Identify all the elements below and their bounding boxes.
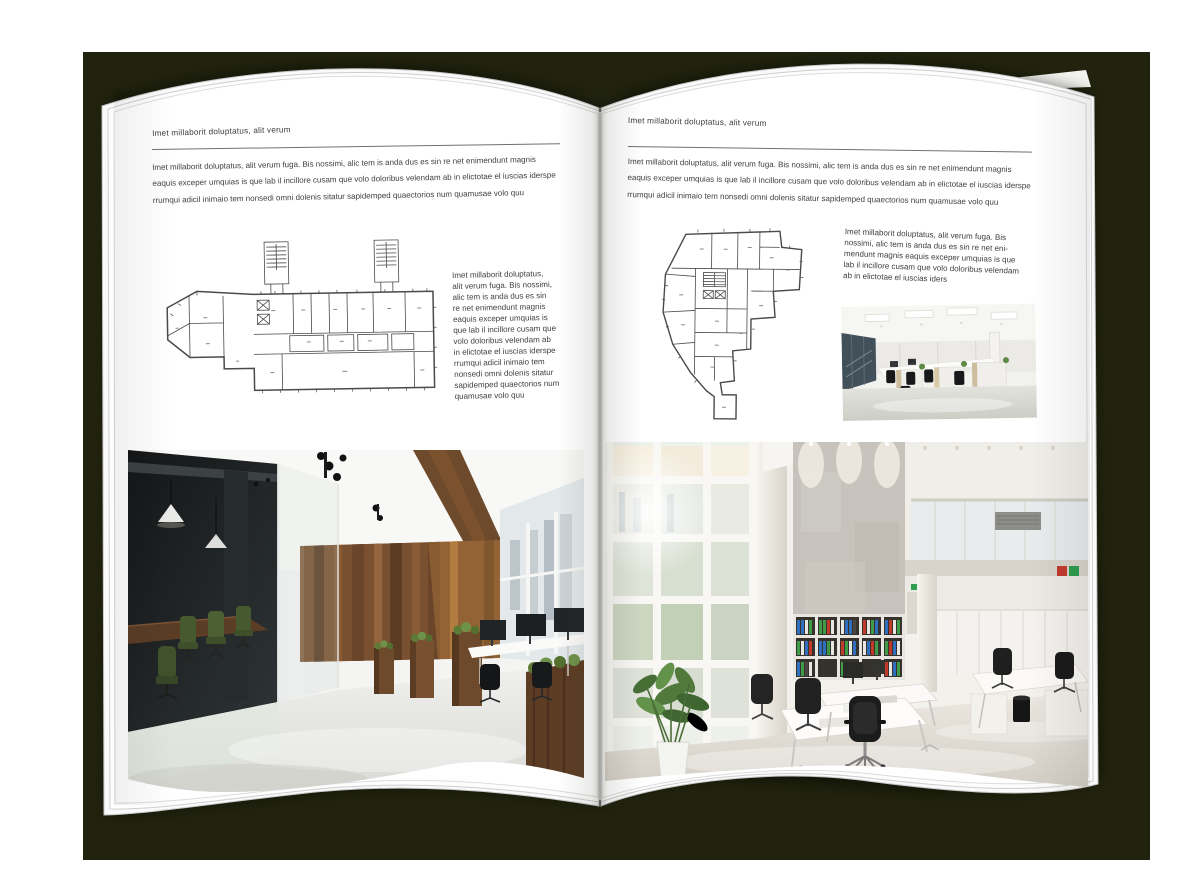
- office-photo-right: [605, 442, 1088, 788]
- room-partitions: [662, 231, 800, 381]
- room-partitions: [167, 287, 435, 392]
- room-number-marks: [175, 307, 424, 374]
- office-photo-left: [128, 450, 584, 795]
- concrete-wall: [793, 442, 905, 638]
- stair-tower: [264, 242, 289, 294]
- glass-partition: [278, 464, 338, 702]
- stair-tower: [374, 240, 399, 292]
- magazine-mockup: Imet millaborit doluptatus, alit verum I…: [0, 0, 1200, 891]
- right-side-paragraph: Imet millaborit doluptatus, alit verum f…: [843, 226, 1021, 288]
- office-photo-small: [841, 304, 1037, 421]
- left-intro-paragraph: Imet millaborit doluptatus, alit verum f…: [152, 152, 556, 210]
- left-side-paragraph: Imet millaborit doluptatus, alit verum f…: [452, 268, 560, 402]
- waste-bin: [1013, 696, 1030, 723]
- main-chair: [844, 696, 886, 776]
- mezzanine: [905, 442, 1088, 576]
- column-right: [917, 574, 937, 692]
- building-outline: [167, 287, 435, 392]
- side-line: quamusae volo quu: [455, 389, 560, 402]
- right-intro-paragraph: Imet millaborit doluptatus, alit verum f…: [627, 154, 1031, 212]
- floor-plan-left: [160, 235, 441, 408]
- glass-meeting-room: [128, 450, 278, 732]
- floor-plan-right: [650, 224, 812, 422]
- window-ticks: [170, 288, 438, 395]
